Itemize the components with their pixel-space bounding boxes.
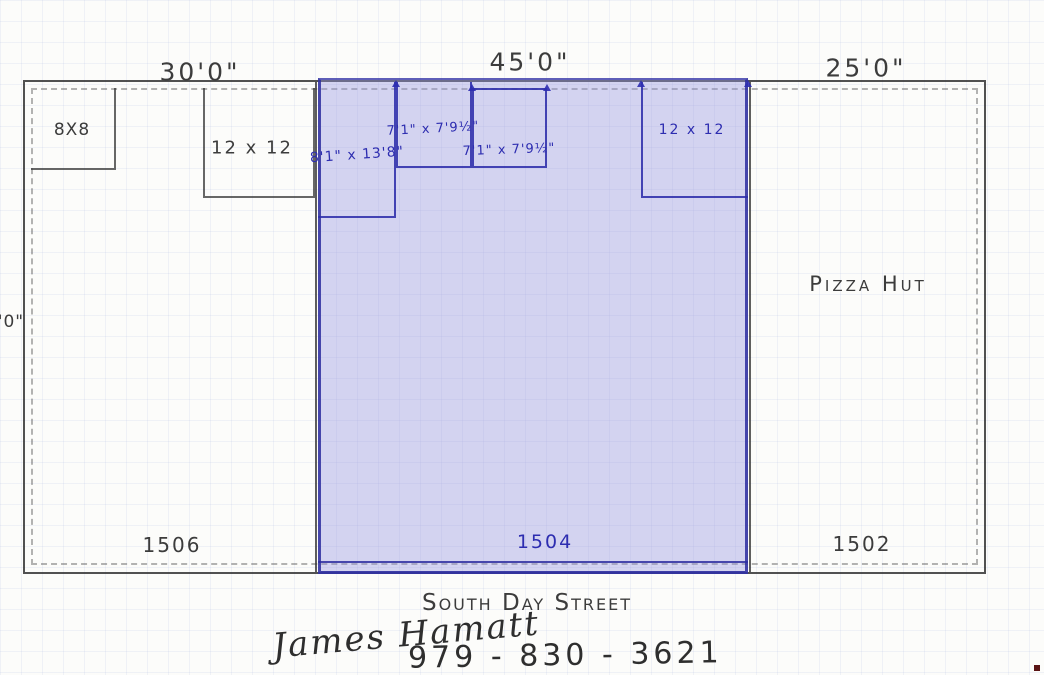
dimension-tick-icon <box>468 84 476 91</box>
dimension-label-30ft: 30'0" <box>159 58 240 87</box>
unit-number-1504: 1504 <box>517 531 573 553</box>
dimension-label-45ft: 45'0" <box>489 48 570 77</box>
partition-1504-1502 <box>749 82 751 572</box>
dimension-label-25ft: 25'0" <box>825 54 906 83</box>
room-label-12x12-right: 12 x 12 <box>659 122 726 138</box>
tenant-label-pizza-hut: Pizza Hut <box>809 272 927 296</box>
phone-number: 979 - 830 - 3621 <box>408 635 723 675</box>
dimension-tick-icon <box>543 84 551 91</box>
floor-plan-sheet: 30'0" 45'0" 25'0" 0'0" 8X8 12 x 12 8'1" … <box>0 0 1044 675</box>
dimension-tick-icon <box>744 80 752 87</box>
room-label-8x8: 8X8 <box>54 120 90 140</box>
unit-number-1502: 1502 <box>833 532 892 556</box>
unit-number-1506: 1506 <box>143 533 202 557</box>
room-12x12-right <box>641 82 748 198</box>
dimension-tick-icon <box>637 80 645 87</box>
scan-speck <box>1034 665 1040 671</box>
unit-1504-bottom-wall-ink <box>318 561 748 563</box>
room-label-12x12-left: 12 x 12 <box>211 138 293 159</box>
dimension-tick-icon <box>392 80 400 87</box>
dimension-label-depth-partial: 0'0" <box>0 312 24 332</box>
